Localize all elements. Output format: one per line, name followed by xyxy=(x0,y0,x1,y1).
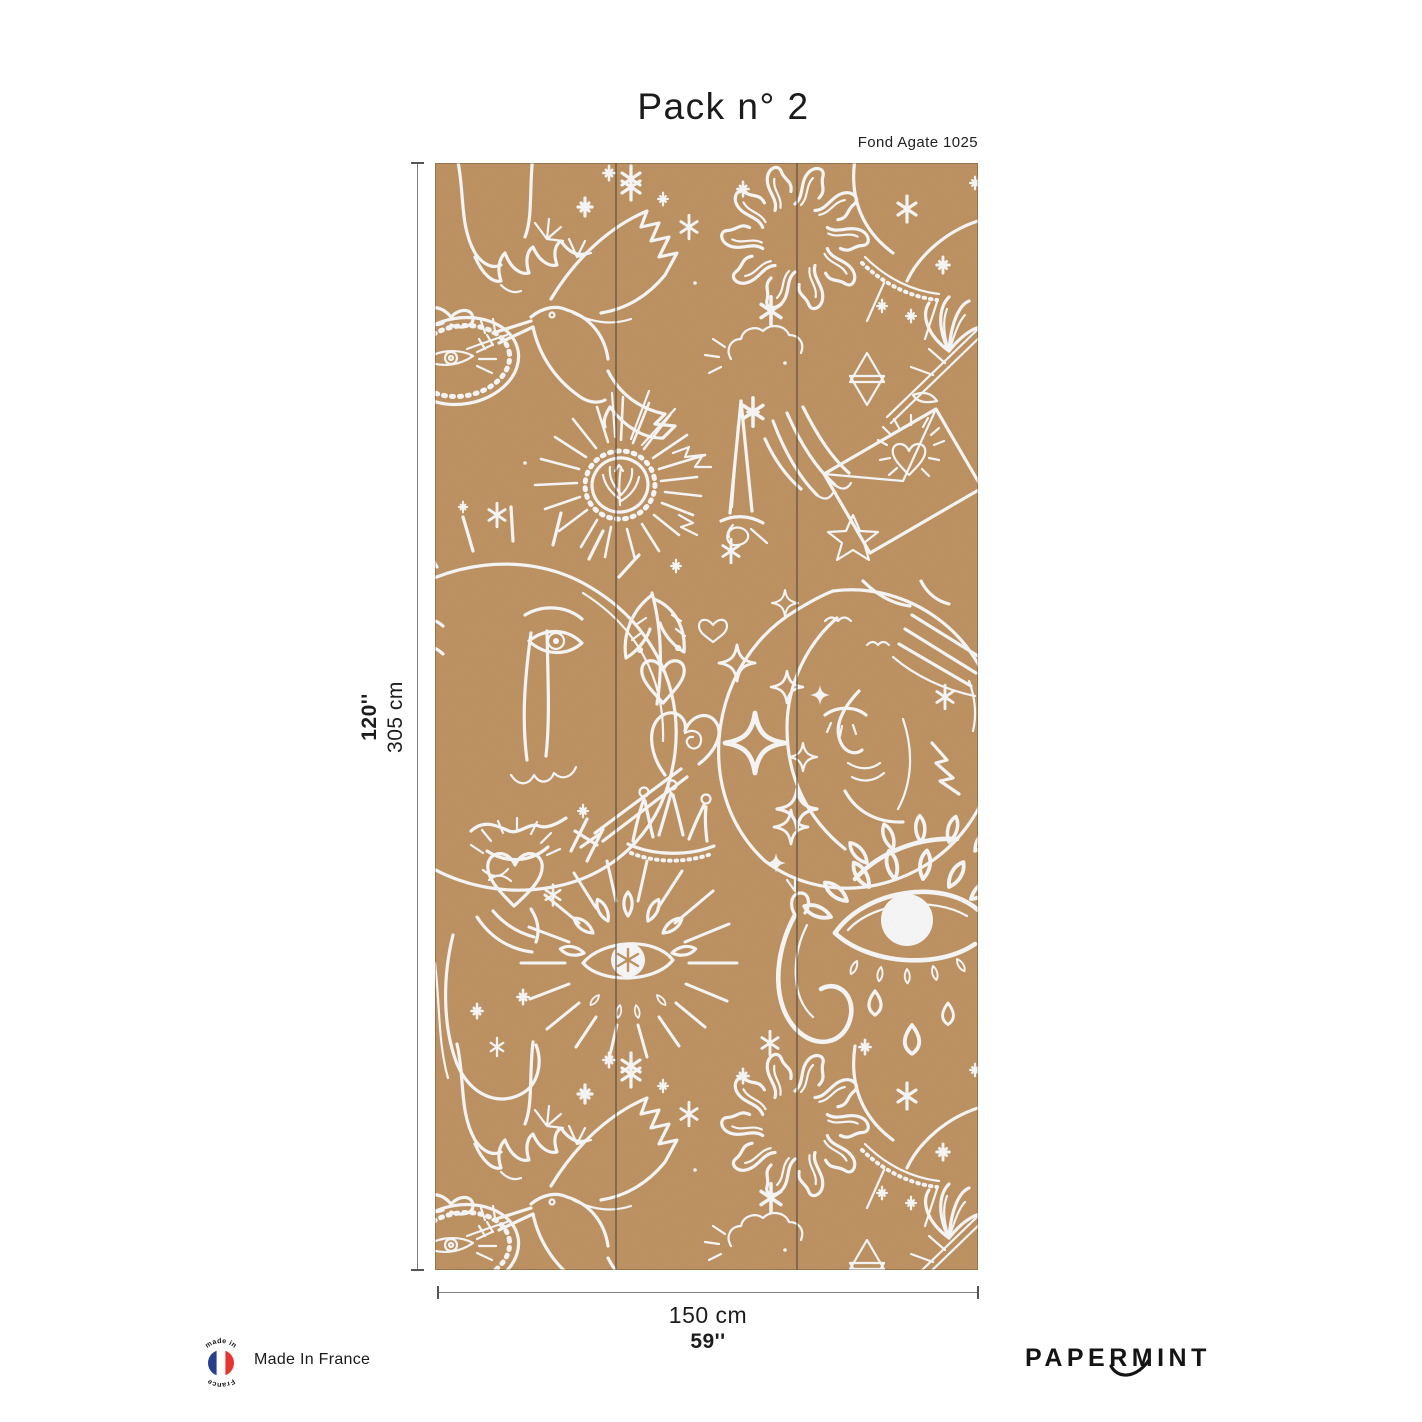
french-flag-icon xyxy=(208,1350,234,1376)
height-dimension-line xyxy=(417,163,418,1271)
width-dimension-tick-right xyxy=(977,1286,979,1299)
wallpaper-panel xyxy=(435,163,978,1270)
made-in-france-label: Made In France xyxy=(254,1351,370,1369)
paper-grain-texture xyxy=(435,163,978,1270)
svg-text:France: France xyxy=(205,1377,237,1390)
width-imperial-label: 59'' xyxy=(438,1329,978,1354)
svg-text:made in: made in xyxy=(203,1336,239,1350)
width-dimension-labels: 150 cm 59'' xyxy=(438,1302,978,1354)
page-title: Pack n° 2 xyxy=(452,86,995,128)
badge-arc-top-text: made in xyxy=(203,1336,239,1350)
height-metric-label: 305 cm xyxy=(383,681,409,753)
height-dimension-tick-top xyxy=(411,162,424,164)
product-sheet: Pack n° 2 Fond Agate 1025 xyxy=(0,0,1422,1422)
variant-label: Fond Agate 1025 xyxy=(858,134,978,151)
badge-arc-bottom-text: France xyxy=(205,1377,237,1390)
width-dimension-line xyxy=(438,1292,978,1293)
width-metric-label: 150 cm xyxy=(438,1302,978,1329)
made-in-france-badge: made in France xyxy=(193,1334,249,1395)
brand-logo-swash xyxy=(1105,1356,1165,1384)
width-dimension-tick-left xyxy=(437,1286,439,1299)
height-dimension-tick-bottom xyxy=(411,1269,424,1271)
height-imperial-label: 120'' xyxy=(357,681,383,753)
